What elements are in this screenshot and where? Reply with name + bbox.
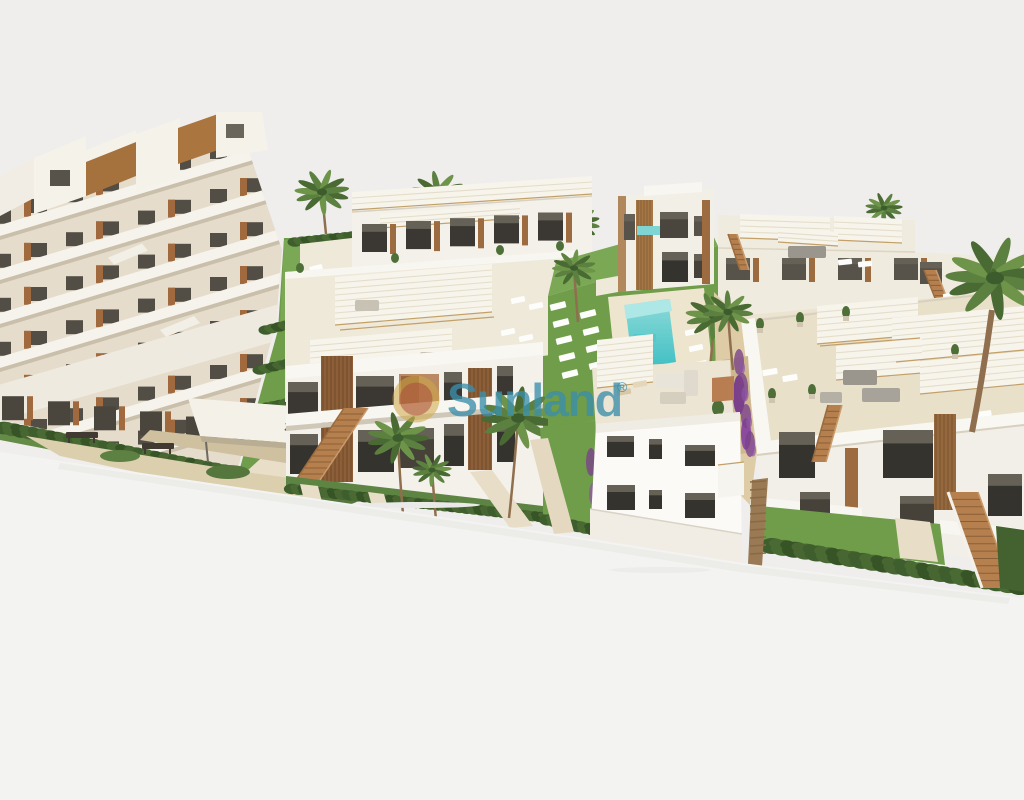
svg-text:Sunland: Sunland: [447, 374, 622, 426]
svg-text:®: ®: [617, 379, 628, 395]
